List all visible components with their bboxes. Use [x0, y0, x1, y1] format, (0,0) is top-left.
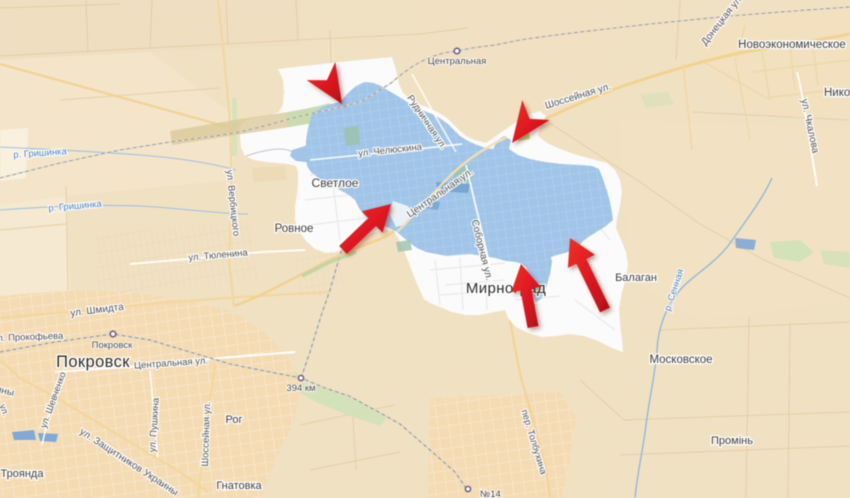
svg-text:Ровное: Ровное: [275, 223, 314, 235]
svg-text:Балаган: Балаган: [615, 272, 657, 284]
svg-text:№14: №14: [480, 489, 501, 498]
svg-text:Светлое: Светлое: [312, 176, 359, 190]
svg-text:Рог: Рог: [226, 414, 243, 426]
svg-text:Никола: Никола: [824, 87, 850, 99]
svg-text:Шоссейная ул.: Шоссейная ул.: [200, 401, 213, 466]
svg-text:Центральная: Центральная: [428, 56, 487, 67]
svg-text:Покровск: Покровск: [56, 353, 130, 371]
svg-text:394 км: 394 км: [286, 383, 315, 394]
svg-text:Гнатовка: Гнатовка: [216, 480, 262, 492]
svg-text:Троянда: Троянда: [1, 468, 45, 480]
svg-text:Промінь: Промінь: [711, 435, 753, 447]
svg-text:Покровск: Покровск: [92, 340, 134, 351]
svg-text:Новоэкономическое: Новоэкономическое: [738, 39, 846, 51]
svg-text:Московское: Московское: [649, 354, 712, 366]
